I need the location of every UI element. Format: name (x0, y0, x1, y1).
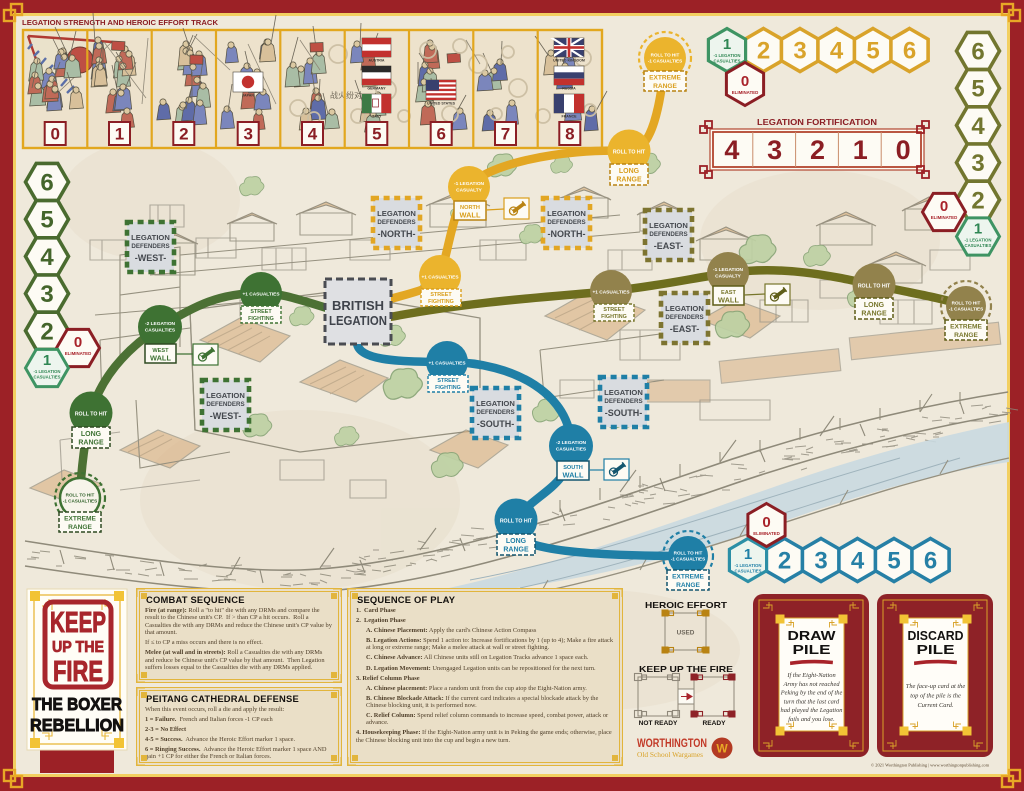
svg-text:STREET: STREET (430, 292, 452, 298)
svg-text:LEGATION: LEGATION (649, 221, 688, 230)
svg-text:-EAST-: -EAST- (654, 241, 684, 251)
svg-text:6: 6 (40, 170, 53, 197)
svg-text:WALL: WALL (150, 354, 171, 363)
svg-text:RANGE: RANGE (861, 311, 887, 318)
svg-text:RANGE: RANGE (653, 83, 677, 90)
svg-text:-1 CASUALTIES: -1 CASUALTIES (949, 307, 983, 312)
svg-text:REBELLION: REBELLION (30, 715, 124, 735)
svg-text:DEFENDERS: DEFENDERS (547, 219, 585, 226)
svg-text:UNITED KINGDOM: UNITED KINGDOM (553, 59, 585, 63)
svg-text:Peking by the end of the: Peking by the end of the (780, 690, 843, 697)
svg-text:6: 6 (436, 125, 445, 144)
svg-text:-2 LEGATION: -2 LEGATION (145, 321, 176, 327)
svg-text:UP THE: UP THE (52, 639, 104, 656)
svg-text:-1 LEGATION: -1 LEGATION (735, 563, 762, 568)
svg-text:RANGE: RANGE (676, 582, 700, 589)
svg-text:LONG: LONG (619, 168, 640, 175)
svg-text:WALL: WALL (563, 471, 584, 480)
svg-text:RANGE: RANGE (78, 440, 104, 447)
svg-text:HEROIC EFFORT: HEROIC EFFORT (645, 600, 728, 610)
svg-text:DEFENDERS: DEFENDERS (649, 231, 687, 238)
svg-text:LONG: LONG (81, 431, 102, 438)
svg-text:DISCARD: DISCARD (908, 628, 964, 643)
svg-text:FIGHTING: FIGHTING (435, 385, 461, 391)
svg-text:0: 0 (741, 73, 749, 90)
svg-text:had played the Legation: had played the Legation (781, 707, 843, 714)
svg-text:DEFENDERS: DEFENDERS (665, 314, 703, 321)
svg-text:6: 6 (924, 548, 937, 575)
svg-text:6: 6 (971, 39, 984, 66)
svg-text:-SOUTH-: -SOUTH- (477, 419, 515, 429)
svg-text:5: 5 (887, 548, 900, 575)
svg-text:ROLL TO HIT: ROLL TO HIT (674, 551, 703, 556)
svg-text:2: 2 (40, 318, 53, 345)
svg-text:LEGATION: LEGATION (476, 399, 515, 408)
svg-text:4: 4 (971, 113, 985, 140)
svg-text:© 2021 Worthington Publishing: © 2021 Worthington Publishing | www.wort… (871, 763, 990, 768)
svg-text:7: 7 (501, 125, 510, 144)
svg-text:1: 1 (974, 221, 982, 238)
svg-text:-1 CASUALTIES: -1 CASUALTIES (671, 557, 705, 562)
svg-text:DEFENDERS: DEFENDERS (377, 219, 415, 226)
svg-text:EXTREME: EXTREME (950, 324, 982, 331)
svg-text:LEGATION STRENGTH AND HEROIC E: LEGATION STRENGTH AND HEROIC EFFORT TRAC… (22, 18, 219, 27)
svg-text:-WEST-: -WEST- (135, 253, 167, 263)
svg-text:ITALY: ITALY (372, 115, 382, 119)
svg-text:+1 CASUALTIES: +1 CASUALTIES (421, 275, 459, 281)
svg-text:+1 CASUALTIES: +1 CASUALTIES (242, 292, 280, 298)
svg-text:5: 5 (40, 207, 53, 234)
svg-text:2: 2 (810, 135, 825, 165)
svg-text:RANGE: RANGE (503, 547, 529, 554)
svg-text:2: 2 (971, 187, 984, 214)
svg-text:2: 2 (757, 38, 770, 65)
svg-text:If the Eight-Nation: If the Eight-Nation (786, 672, 835, 679)
svg-text:FRANCE: FRANCE (562, 115, 578, 119)
svg-text:LEGATION: LEGATION (377, 209, 416, 218)
svg-text:UNITED STATES: UNITED STATES (427, 102, 456, 106)
svg-text:ELIMINATED: ELIMINATED (65, 351, 92, 356)
svg-text:Current Card.: Current Card. (917, 702, 954, 709)
svg-text:CASUALTIES: CASUALTIES (145, 328, 176, 334)
svg-text:EXTREME: EXTREME (64, 516, 96, 523)
svg-text:0: 0 (940, 198, 948, 215)
svg-text:DRAW: DRAW (788, 628, 837, 643)
svg-text:5: 5 (971, 76, 984, 103)
svg-text:-1 CASUALTIES: -1 CASUALTIES (648, 59, 682, 64)
svg-text:ELIMINATED: ELIMINATED (753, 531, 780, 536)
svg-text:ROLL TO HIT: ROLL TO HIT (952, 301, 981, 306)
svg-text:KEEP UP THE FIRE: KEEP UP THE FIRE (639, 664, 733, 674)
svg-text:+1 CASUALTIES: +1 CASUALTIES (592, 290, 630, 296)
svg-text:LEGATION: LEGATION (665, 304, 704, 313)
svg-text:-SOUTH-: -SOUTH- (605, 408, 643, 418)
svg-text:4: 4 (308, 125, 318, 144)
svg-text:PILE: PILE (917, 642, 955, 657)
svg-text:1: 1 (723, 36, 731, 53)
svg-text:EXTREME: EXTREME (672, 574, 704, 581)
svg-text:0: 0 (74, 334, 82, 351)
svg-text:FIGHTING: FIGHTING (428, 299, 454, 305)
svg-text:LONG: LONG (506, 538, 527, 545)
svg-text:ROLL TO HIT: ROLL TO HIT (66, 493, 95, 498)
svg-text:3: 3 (814, 548, 827, 575)
svg-text:WALL: WALL (460, 211, 481, 220)
svg-text:THE BOXER: THE BOXER (32, 694, 122, 714)
svg-text:-WEST-: -WEST- (210, 411, 242, 421)
svg-text:LEGATION: LEGATION (131, 233, 170, 242)
svg-text:RANGE: RANGE (68, 524, 92, 531)
svg-text:Old School Wargames: Old School Wargames (637, 750, 703, 759)
svg-text:GERMANY: GERMANY (367, 87, 386, 91)
svg-text:FIGHTING: FIGHTING (601, 314, 627, 320)
svg-text:LEGATION: LEGATION (329, 314, 387, 328)
svg-text:JAPAN: JAPAN (242, 94, 254, 98)
svg-text:-1 CASUALTIES: -1 CASUALTIES (63, 499, 97, 504)
svg-text:fails and you lose.: fails and you lose. (788, 716, 835, 723)
svg-text:3: 3 (243, 125, 252, 144)
svg-text:turn that the last card: turn that the last card (784, 698, 840, 705)
svg-text:3: 3 (793, 38, 806, 65)
svg-text:-NORTH-: -NORTH- (378, 229, 416, 239)
svg-text:-EAST-: -EAST- (670, 324, 700, 334)
svg-text:NOT READY: NOT READY (639, 720, 678, 727)
svg-text:ROLL TO HIT: ROLL TO HIT (500, 519, 533, 525)
svg-text:3: 3 (971, 150, 984, 177)
svg-text:DEFENDERS: DEFENDERS (476, 409, 514, 416)
svg-text:PILE: PILE (793, 642, 831, 657)
svg-text:4: 4 (830, 38, 844, 65)
svg-text:0: 0 (896, 135, 911, 165)
svg-text:CASUALTIES: CASUALTIES (556, 447, 587, 453)
svg-text:LEGATION: LEGATION (547, 209, 586, 218)
svg-text:CASUALTIES: CASUALTIES (714, 59, 741, 64)
svg-text:+1 CASUALTIES: +1 CASUALTIES (428, 361, 466, 367)
svg-text:3: 3 (40, 281, 53, 308)
svg-text:6: 6 (903, 38, 916, 65)
svg-text:战火纷对: 战火纷对 (330, 90, 362, 100)
svg-text:CASUALTY: CASUALTY (715, 274, 742, 280)
svg-text:Army has not reached: Army has not reached (782, 681, 840, 688)
svg-text:4: 4 (851, 548, 865, 575)
svg-text:4: 4 (40, 244, 54, 271)
svg-text:LEGATION: LEGATION (206, 391, 245, 400)
svg-text:RANGE: RANGE (616, 177, 642, 184)
svg-text:RUSSIA: RUSSIA (562, 87, 576, 91)
svg-text:WALL: WALL (718, 296, 739, 305)
svg-text:READY: READY (702, 720, 726, 727)
svg-text:WORTHINGTON: WORTHINGTON (637, 736, 707, 750)
svg-text:DEFENDERS: DEFENDERS (206, 401, 244, 408)
svg-text:0: 0 (762, 514, 770, 531)
svg-text:USED: USED (677, 630, 695, 637)
svg-text:AUSTRIA: AUSTRIA (369, 59, 385, 63)
svg-text:ROLL TO HIT: ROLL TO HIT (651, 53, 680, 58)
svg-text:1: 1 (43, 352, 51, 369)
svg-text:DEFENDERS: DEFENDERS (604, 398, 642, 405)
svg-text:-1 LEGATION: -1 LEGATION (454, 181, 485, 187)
svg-text:1: 1 (853, 135, 868, 165)
svg-text:5: 5 (372, 125, 381, 144)
svg-text:-NORTH-: -NORTH- (548, 229, 586, 239)
svg-text:0: 0 (50, 125, 59, 144)
svg-text:LEGATION: LEGATION (604, 388, 643, 397)
svg-text:1: 1 (115, 125, 124, 144)
svg-text:W: W (716, 742, 728, 756)
svg-text:STREET: STREET (437, 378, 459, 384)
svg-text:-1 LEGATION: -1 LEGATION (713, 267, 744, 273)
svg-text:CASUALTIES: CASUALTIES (735, 569, 762, 574)
svg-text:-1 LEGATION: -1 LEGATION (34, 369, 61, 374)
svg-text:5: 5 (866, 38, 879, 65)
svg-text:top of the pile is the: top of the pile is the (910, 693, 961, 700)
svg-text:2: 2 (778, 548, 791, 575)
svg-text:2: 2 (179, 125, 188, 144)
svg-text:BRITISH: BRITISH (332, 299, 384, 313)
svg-text:-1 LEGATION: -1 LEGATION (714, 53, 741, 58)
svg-text:1: 1 (744, 546, 752, 563)
svg-text:EXTREME: EXTREME (649, 75, 681, 82)
svg-text:3: 3 (767, 135, 782, 165)
svg-text:ELIMINATED: ELIMINATED (732, 90, 759, 95)
svg-text:STREET: STREET (250, 309, 272, 315)
svg-text:STREET: STREET (603, 307, 625, 313)
svg-text:4: 4 (724, 135, 739, 165)
svg-text:FIRE: FIRE (53, 656, 103, 688)
svg-text:ELIMINATED: ELIMINATED (931, 215, 958, 220)
svg-text:LONG: LONG (864, 302, 885, 309)
svg-text:RANGE: RANGE (954, 332, 978, 339)
svg-text:-2 LEGATION: -2 LEGATION (556, 440, 587, 446)
svg-text:CASUALTIES: CASUALTIES (34, 375, 61, 380)
svg-text:FIGHTING: FIGHTING (248, 316, 274, 322)
svg-text:ROLL TO HIT: ROLL TO HIT (75, 412, 108, 418)
svg-text:ROLL TO HIT: ROLL TO HIT (858, 284, 891, 290)
svg-text:CASUALTY: CASUALTY (456, 188, 483, 194)
svg-text:CASUALTIES: CASUALTIES (965, 243, 992, 248)
svg-text:8: 8 (565, 125, 574, 144)
svg-text:ROLL TO HIT: ROLL TO HIT (613, 150, 646, 156)
svg-text:DEFENDERS: DEFENDERS (131, 243, 169, 250)
svg-text:LEGATION FORTIFICATION: LEGATION FORTIFICATION (757, 117, 877, 127)
svg-text:-1 LEGATION: -1 LEGATION (965, 238, 992, 243)
svg-text:The face-up card at the: The face-up card at the (906, 683, 966, 690)
svg-text:KEEP: KEEP (50, 607, 106, 639)
